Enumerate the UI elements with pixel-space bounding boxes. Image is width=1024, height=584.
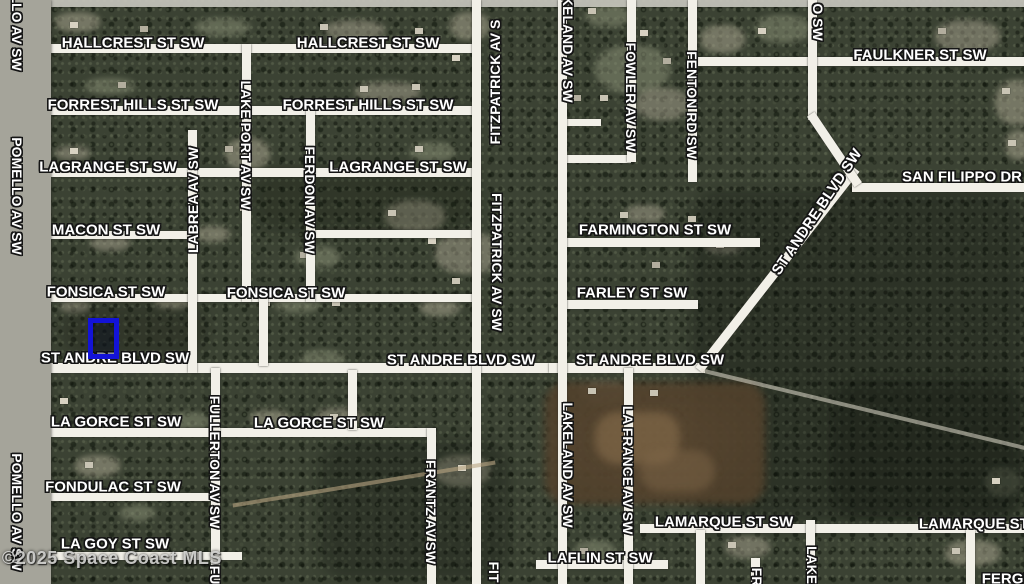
street-label: O SW — [811, 3, 825, 40]
street-label: FENTON RD SW — [685, 51, 699, 159]
street-label: LAGRANGE ST SW — [329, 160, 467, 175]
watermark-text: ©2025 Space Coast MLS — [2, 548, 222, 569]
street-label: LAKELAND AV SW — [561, 402, 575, 527]
street-label: POMELLO AV SW — [10, 0, 24, 71]
street-label: FRANTZ AV SW — [424, 460, 438, 564]
street-label: ST ANDRE BLVD SW — [387, 353, 535, 368]
street-label: FR — [750, 568, 764, 584]
street-label: LA FRANCE AV SW — [621, 406, 635, 535]
street-label: LAMARQUE ST SW — [655, 515, 793, 530]
street-label: FOWLER AV SW — [624, 43, 638, 152]
street-label: LAKELAND AV SW — [561, 0, 575, 103]
street-label: FITZPATRICK AV SW — [490, 193, 504, 331]
street-label: HALLCREST ST SW — [297, 36, 440, 51]
street-label: LAMARQUE ST SW — [919, 517, 1024, 532]
street-label: FORREST HILLS ST SW — [283, 98, 454, 113]
street-label: LAKE PORT AV SW — [239, 80, 253, 209]
street-label: LABREA AV SW — [186, 147, 200, 253]
street-label: HALLCREST ST SW — [62, 36, 205, 51]
street-label: FAULKNER ST SW — [853, 48, 986, 63]
street-label: FERDON AV SW — [303, 146, 317, 253]
street-label: LAFLIN ST SW — [548, 551, 653, 566]
street-labels-layer: HALLCREST ST SWHALLCREST ST SWFORREST HI… — [0, 0, 1024, 584]
street-label: FITZPATRICK AV S — [488, 20, 502, 145]
street-label: FARLEY ST SW — [577, 286, 688, 301]
street-label: FIT — [487, 562, 501, 583]
street-label: ST ANDRE BLVD SW — [769, 146, 864, 277]
street-label: FONSICA ST SW — [47, 285, 166, 300]
street-label: LAKE — [805, 546, 819, 584]
street-label: LA GORCE ST SW — [51, 415, 181, 430]
street-label: LAGRANGE ST SW — [39, 160, 177, 175]
street-label: SAN FILIPPO DR — [902, 170, 1022, 185]
street-label: POMELLO AV SW — [10, 137, 24, 254]
street-label: ST ANDRE BLVD SW — [576, 353, 724, 368]
street-label: FONSICA ST SW — [227, 286, 346, 301]
satellite-map[interactable]: HALLCREST ST SWHALLCREST ST SWFORREST HI… — [0, 0, 1024, 584]
street-label: FARMINGTON ST SW — [579, 223, 731, 238]
street-label: FERGU — [982, 572, 1024, 584]
street-label: FONDULAC ST SW — [45, 480, 181, 495]
street-label: FULLERTON AV SW — [208, 396, 222, 529]
street-label: FORREST HILLS ST SW — [48, 98, 219, 113]
street-label: LA GORCE ST SW — [254, 416, 384, 431]
property-marker-rectangle[interactable] — [88, 318, 119, 359]
street-label: MACON ST SW — [52, 223, 160, 238]
